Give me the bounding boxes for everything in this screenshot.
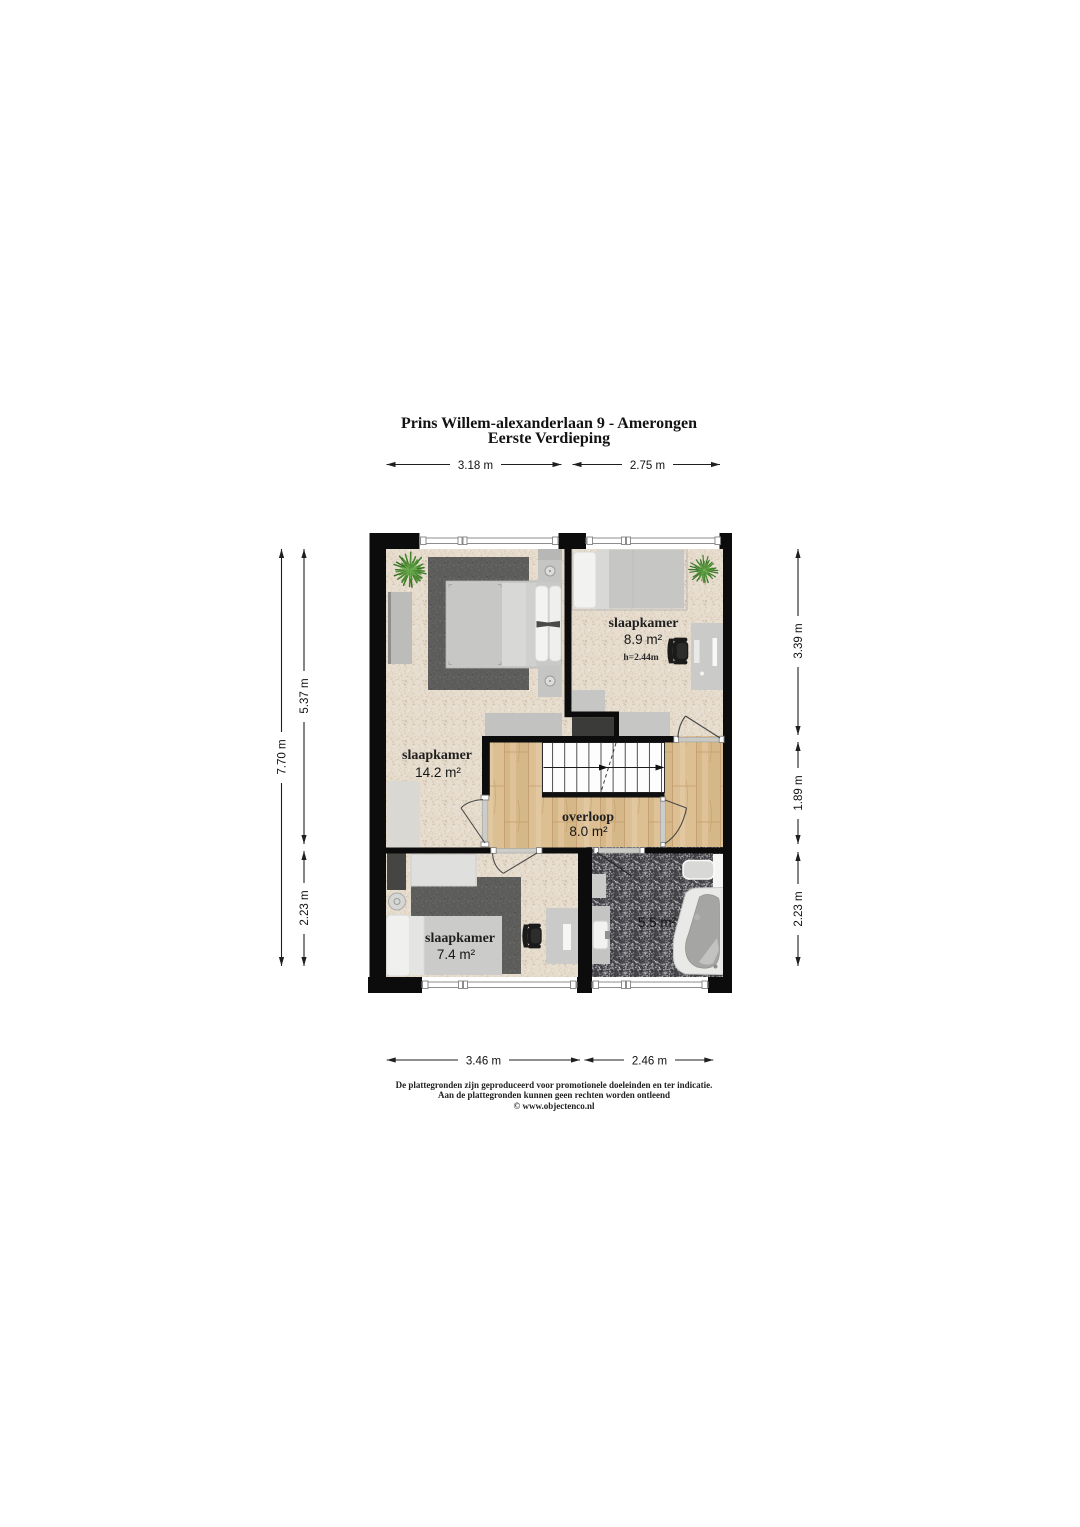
svg-text:3.18 m: 3.18 m xyxy=(458,460,493,472)
svg-text:2.75 m: 2.75 m xyxy=(630,460,665,472)
svg-text:5.5 m²: 5.5 m² xyxy=(638,915,677,930)
svg-text:8.9 m²: 8.9 m² xyxy=(624,632,663,647)
svg-text:h=2.44m: h=2.44m xyxy=(623,653,658,663)
svg-text:slaapkamer: slaapkamer xyxy=(609,616,679,631)
svg-text:5.37 m: 5.37 m xyxy=(299,678,311,713)
svg-text:8.0 m²: 8.0 m² xyxy=(569,824,608,839)
svg-text:1.89 m: 1.89 m xyxy=(793,775,805,810)
svg-text:2.23 m: 2.23 m xyxy=(793,891,805,926)
svg-text:3.39 m: 3.39 m xyxy=(793,623,805,658)
svg-text:slaapkamer: slaapkamer xyxy=(425,931,495,946)
svg-text:7.4 m²: 7.4 m² xyxy=(437,947,476,962)
svg-text:overloop: overloop xyxy=(562,810,614,825)
svg-text:slaapkamer: slaapkamer xyxy=(402,748,472,763)
svg-text:14.2 m²: 14.2 m² xyxy=(415,765,461,780)
svg-text:3.46 m: 3.46 m xyxy=(466,1056,501,1068)
svg-text:7.70 m: 7.70 m xyxy=(277,739,289,774)
svg-text:2.46 m: 2.46 m xyxy=(632,1056,667,1068)
svg-text:2.23 m: 2.23 m xyxy=(299,890,311,925)
